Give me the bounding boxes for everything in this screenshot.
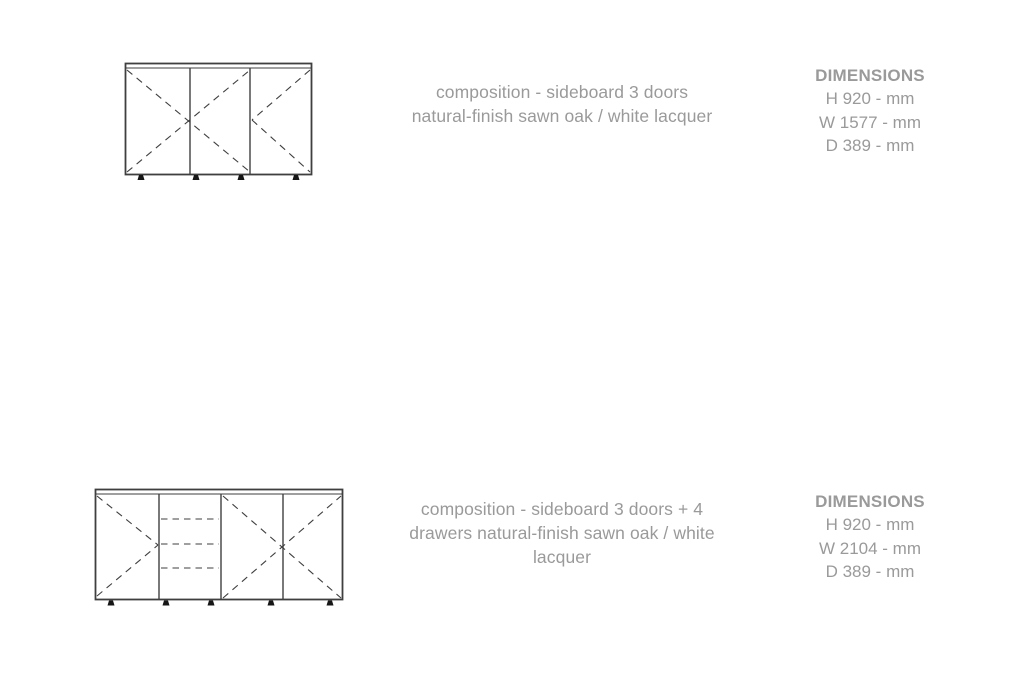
description-line: composition - sideboard 3 doors + 4 (392, 497, 732, 521)
dimensions-title: DIMENSIONS (795, 64, 945, 87)
description-line: lacquer (392, 545, 732, 569)
dimension-width: W 2104 - mm (795, 537, 945, 560)
dimension-height: H 920 - mm (795, 513, 945, 536)
sideboard-feet (138, 175, 300, 180)
sideboard-3-doors-4-drawers-drawing (94, 488, 346, 610)
dimensions-block: DIMENSIONS H 920 - mm W 1577 - mm D 389 … (795, 64, 945, 158)
dimensions-title: DIMENSIONS (795, 490, 945, 513)
product-description: composition - sideboard 3 doors natural-… (392, 80, 732, 128)
dimension-width: W 1577 - mm (795, 111, 945, 134)
drawer-divider-lines (161, 519, 219, 568)
description-line: natural-finish sawn oak / white lacquer (392, 104, 732, 128)
dimension-depth: D 389 - mm (795, 560, 945, 583)
dimension-height: H 920 - mm (795, 87, 945, 110)
catalog-page: composition - sideboard 3 doors natural-… (0, 0, 1014, 694)
product-description: composition - sideboard 3 doors + 4 draw… (392, 497, 732, 569)
sideboard-3-doors-drawing (124, 62, 314, 184)
description-line: drawers natural-finish sawn oak / white (392, 521, 732, 545)
description-line: composition - sideboard 3 doors (392, 80, 732, 104)
sideboard-feet (108, 601, 334, 606)
dimension-depth: D 389 - mm (795, 134, 945, 157)
dimensions-block: DIMENSIONS H 920 - mm W 2104 - mm D 389 … (795, 490, 945, 584)
